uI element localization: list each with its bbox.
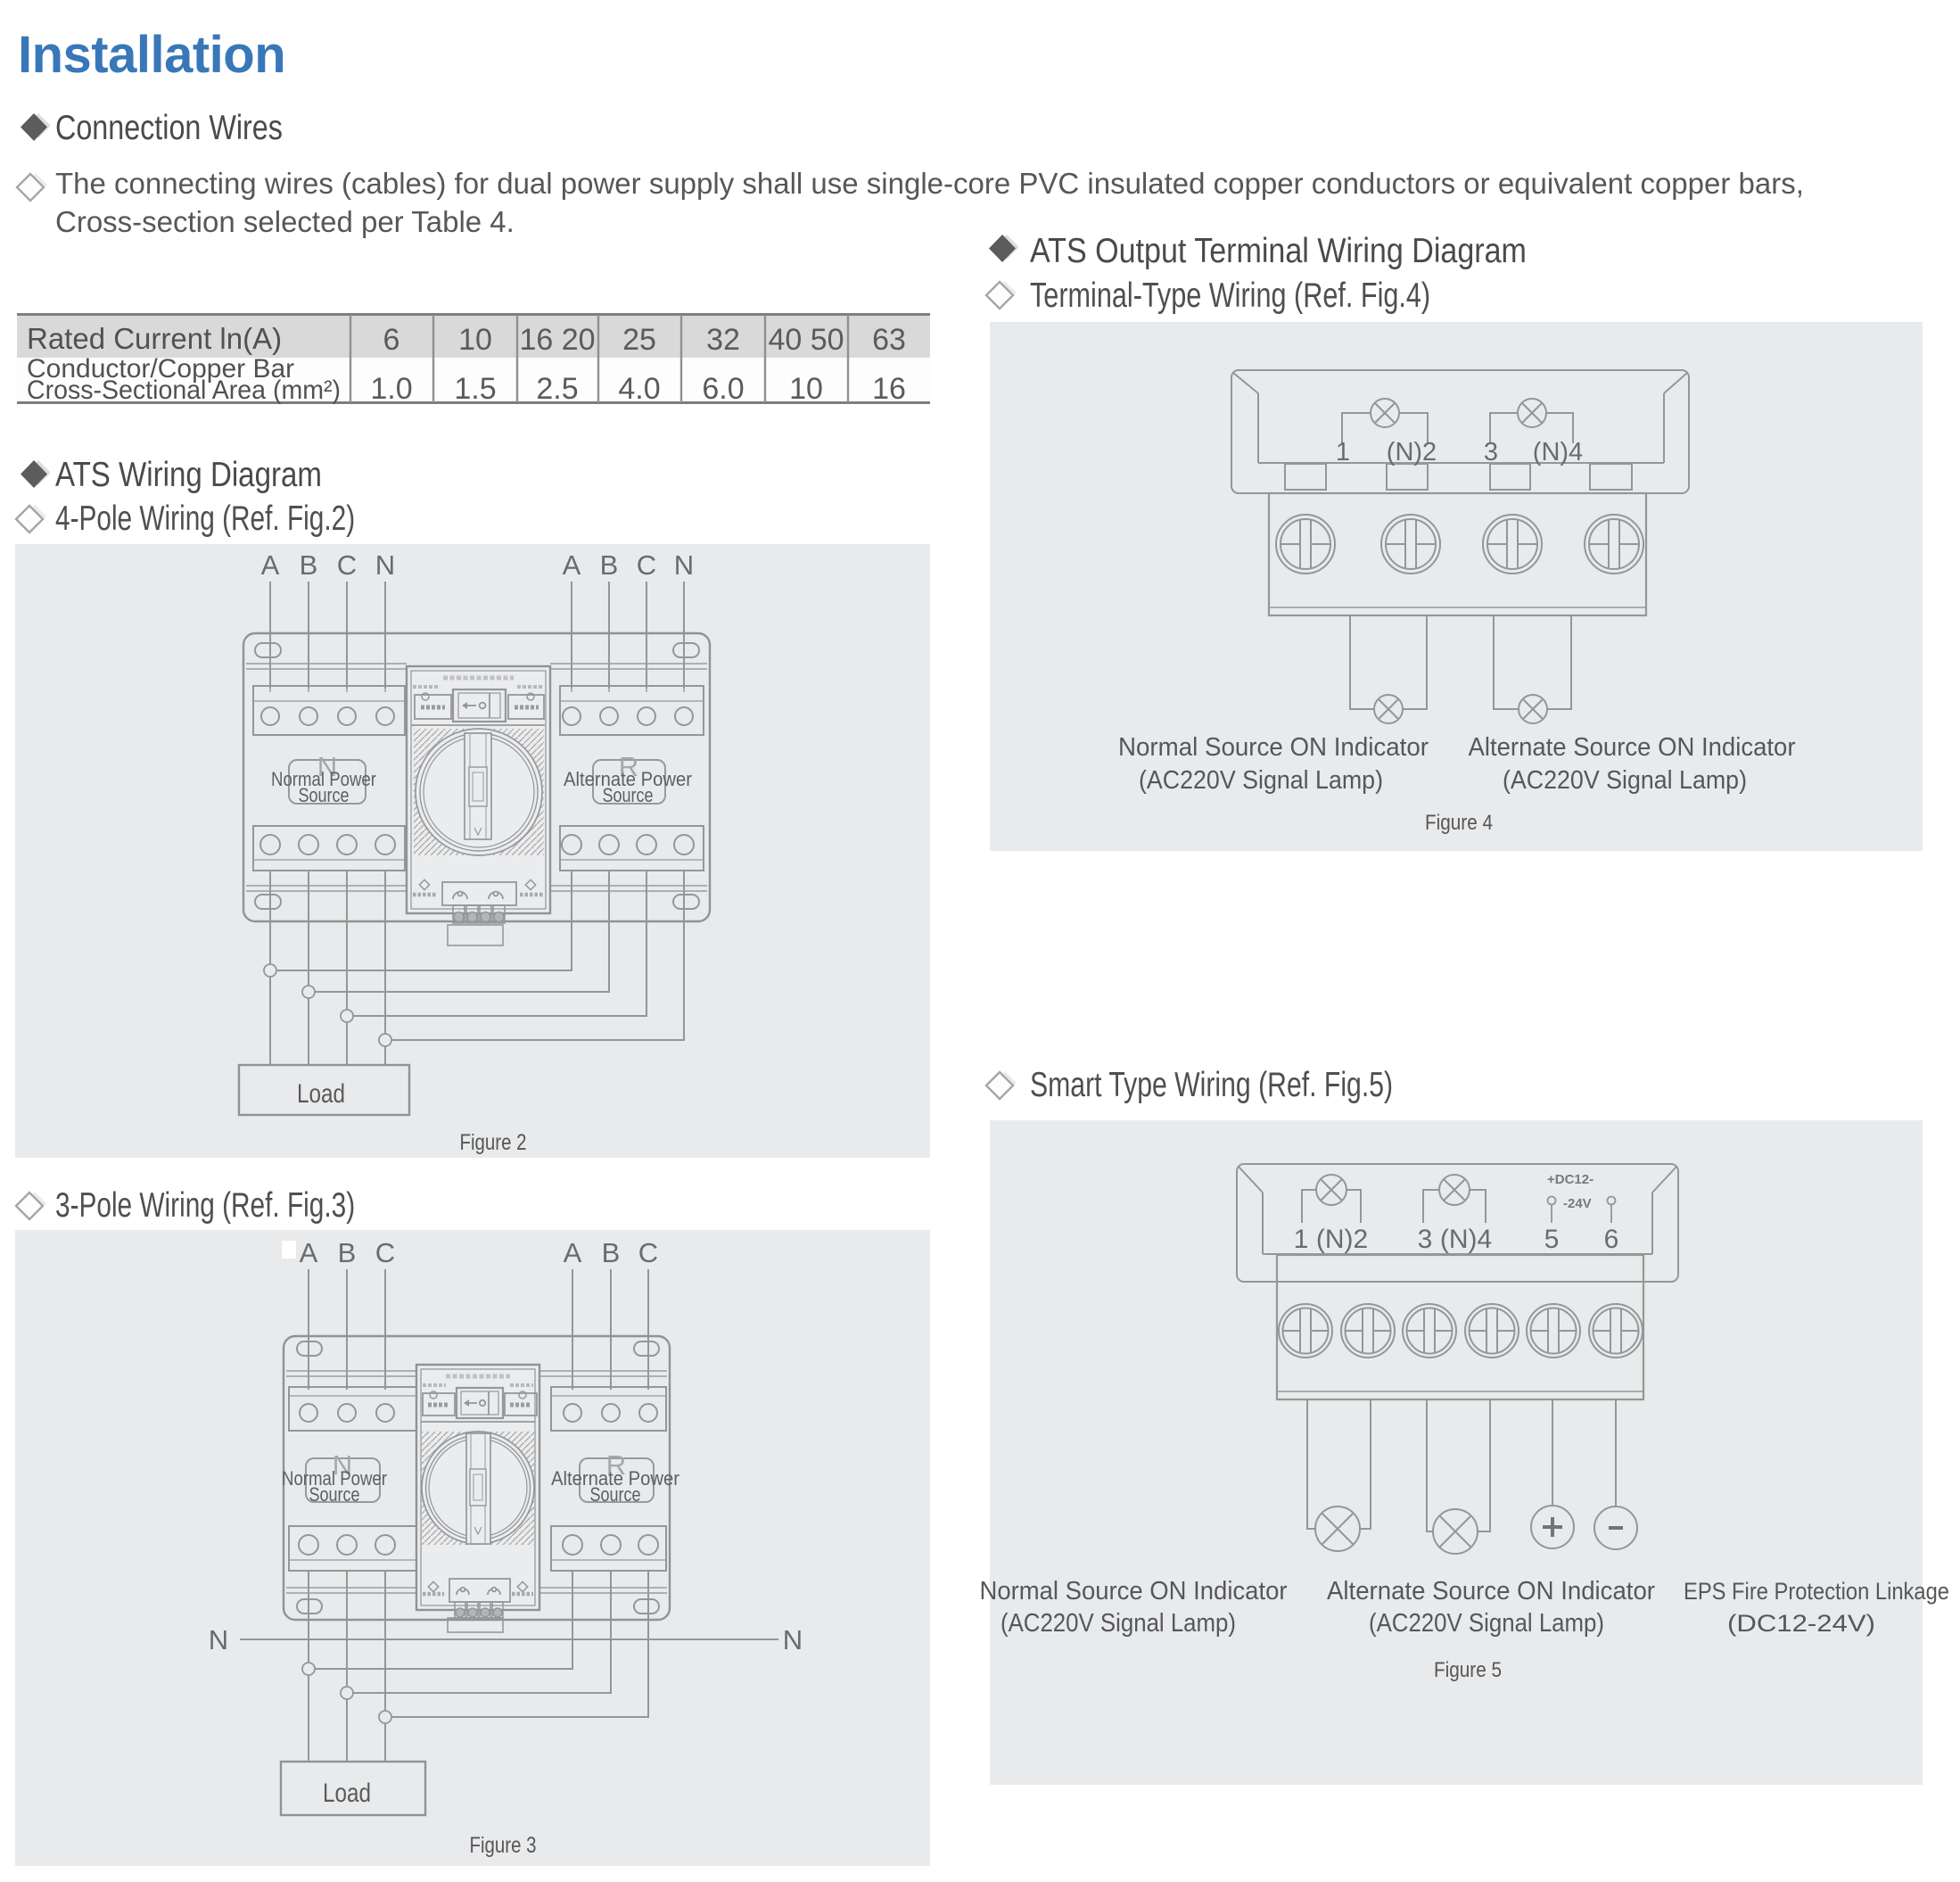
svg-text:10: 10	[458, 323, 492, 357]
svg-text:40 50: 40 50	[768, 323, 844, 357]
svg-text:(N)4: (N)4	[1440, 1225, 1492, 1254]
svg-text:(AC220V Signal Lamp): (AC220V Signal Lamp)	[1001, 1609, 1236, 1638]
svg-text:16 20: 16 20	[519, 323, 595, 357]
svg-text:Cross-Sectional Area (mm²): Cross-Sectional Area (mm²)	[27, 376, 341, 404]
svg-text:Figure 5: Figure 5	[1434, 1658, 1502, 1682]
svg-text:Source: Source	[309, 1483, 360, 1506]
svg-text:1.0: 1.0	[370, 372, 412, 404]
svg-text:-24V: -24V	[1563, 1196, 1592, 1211]
svg-text:1.5: 1.5	[454, 372, 496, 404]
svg-text:B: B	[338, 1237, 357, 1268]
svg-text:Alternate Source ON Indicator: Alternate Source ON Indicator	[1469, 733, 1796, 762]
svg-text:1: 1	[1294, 1225, 1309, 1254]
svg-text:N: N	[674, 549, 694, 581]
svg-text:Figure 4: Figure 4	[1425, 811, 1493, 835]
svg-text:4.0: 4.0	[618, 372, 660, 404]
svg-text:3: 3	[1418, 1225, 1433, 1254]
svg-text:2.5: 2.5	[536, 372, 578, 404]
svg-text:6: 6	[383, 323, 400, 357]
svg-text:+DC12-: +DC12-	[1547, 1172, 1594, 1187]
svg-text:Load: Load	[297, 1079, 345, 1109]
svg-text:Rated Current ln(A): Rated Current ln(A)	[27, 322, 282, 355]
svg-text:Source: Source	[590, 1483, 641, 1506]
svg-text:B: B	[602, 1237, 621, 1268]
svg-text:C: C	[337, 549, 357, 581]
svg-text:(AC220V Signal Lamp): (AC220V Signal Lamp)	[1139, 766, 1383, 795]
svg-text:32: 32	[706, 323, 740, 357]
svg-text:N: N	[209, 1624, 228, 1655]
svg-text:EPS Fire Protection Linkage: EPS Fire Protection Linkage	[1684, 1578, 1949, 1605]
svg-text:10: 10	[789, 372, 823, 404]
svg-text:C: C	[638, 1237, 658, 1268]
svg-text:(DC12-24V): (DC12-24V)	[1727, 1610, 1875, 1637]
svg-text:3: 3	[1484, 438, 1498, 466]
svg-text:A: A	[300, 1237, 318, 1268]
svg-text:(AC220V Signal Lamp): (AC220V Signal Lamp)	[1503, 766, 1747, 795]
svg-text:Alternate Source ON Indicator: Alternate Source ON Indicator	[1327, 1577, 1655, 1605]
svg-text:(AC220V Signal Lamp): (AC220V Signal Lamp)	[1369, 1609, 1604, 1638]
svg-text:16: 16	[872, 372, 906, 404]
svg-text:N: N	[375, 549, 395, 581]
svg-text:Source: Source	[299, 784, 350, 806]
svg-text:5: 5	[1544, 1225, 1560, 1254]
svg-text:B: B	[300, 549, 318, 581]
svg-text:6.0: 6.0	[702, 372, 744, 404]
svg-text:Normal Source ON Indicator: Normal Source ON Indicator	[980, 1577, 1288, 1605]
svg-text:6: 6	[1604, 1225, 1619, 1254]
svg-text:B: B	[600, 549, 619, 581]
svg-text:Figure 3: Figure 3	[470, 1833, 537, 1858]
svg-text:63: 63	[872, 323, 906, 357]
svg-text:(N)2: (N)2	[1387, 438, 1437, 466]
svg-text:Figure 2: Figure 2	[460, 1130, 527, 1155]
svg-text:25: 25	[622, 323, 656, 357]
svg-text:Normal Source ON Indicator: Normal Source ON Indicator	[1118, 733, 1429, 762]
svg-text:N: N	[783, 1624, 803, 1655]
svg-text:Source: Source	[603, 784, 654, 806]
svg-text:C: C	[375, 1237, 395, 1268]
svg-text:(N)2: (N)2	[1316, 1225, 1368, 1254]
svg-text:Load: Load	[323, 1779, 371, 1808]
svg-text:A: A	[564, 1237, 582, 1268]
svg-text:A: A	[261, 549, 280, 581]
svg-text:(N)4: (N)4	[1533, 438, 1583, 466]
svg-text:A: A	[563, 549, 581, 581]
svg-text:1: 1	[1336, 438, 1350, 466]
svg-text:C: C	[637, 549, 656, 581]
